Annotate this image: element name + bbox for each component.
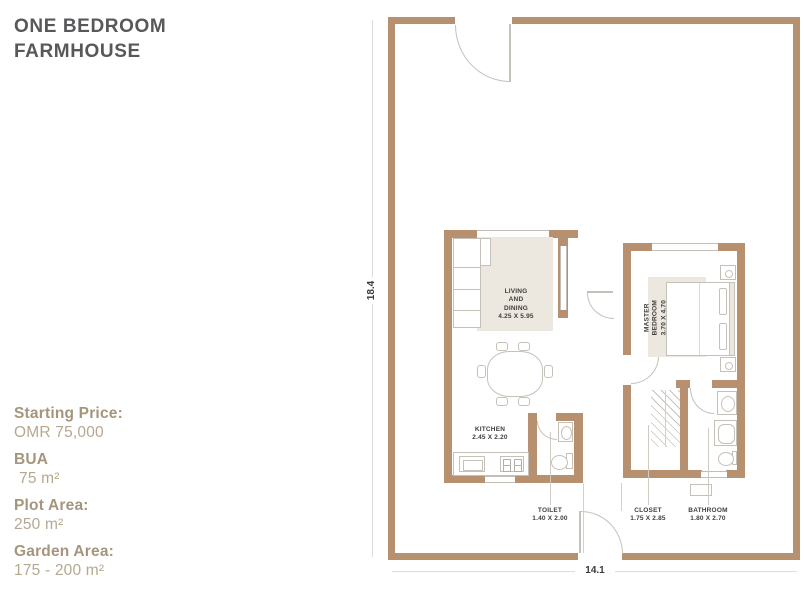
dining-chair bbox=[518, 342, 530, 351]
kitchen-size: 2.45 X 2.20 bbox=[460, 434, 520, 442]
living-dining-size: 4.25 X 5.95 bbox=[481, 313, 551, 321]
plot-wall-top-left bbox=[388, 17, 455, 24]
dining-chair bbox=[477, 365, 486, 378]
living-window-right bbox=[560, 246, 567, 310]
sofa-cushion-line bbox=[454, 310, 480, 311]
dining-table bbox=[487, 351, 543, 397]
page-title: ONE BEDROOM FARMHOUSE bbox=[14, 14, 166, 64]
master-bedroom-name: MASTER BEDROOM bbox=[643, 288, 660, 348]
bed-pillow bbox=[719, 323, 727, 350]
starting-price-value: OMR 75,000 bbox=[14, 424, 123, 443]
room-label-kitchen: KITCHEN 2.45 X 2.20 bbox=[460, 426, 520, 443]
nightstand-lamp bbox=[725, 362, 733, 370]
plot-area-value: 250 m² bbox=[14, 516, 89, 535]
stove-burner bbox=[503, 465, 511, 472]
closet-rail bbox=[665, 390, 666, 447]
kitchen-window-bottom bbox=[485, 476, 515, 483]
hall-door-swing bbox=[587, 293, 614, 319]
brochure-page: ONE BEDROOM FARMHOUSE Starting Price: OM… bbox=[0, 0, 805, 599]
bathroom-leader-line bbox=[708, 428, 709, 505]
dining-chair bbox=[496, 397, 508, 406]
living-wall-left bbox=[444, 230, 452, 483]
toilet-room-sink-basin bbox=[561, 426, 572, 440]
kitchen-toilet-wall bbox=[528, 413, 537, 475]
closet-wall-bottom bbox=[623, 470, 680, 478]
bedroom-window-top bbox=[652, 243, 718, 251]
bathroom-sink-basin bbox=[721, 396, 735, 412]
bathroom-name: BATHROOM bbox=[678, 507, 738, 515]
closet-name: CLOSET bbox=[618, 507, 678, 515]
bedroom-wall-right bbox=[737, 243, 745, 478]
toilet-name: TOILET bbox=[520, 507, 580, 515]
starting-price-label: Starting Price: bbox=[14, 405, 123, 424]
toilet-bowl bbox=[551, 455, 568, 470]
sofa-body bbox=[453, 238, 481, 328]
bathtub-inner bbox=[718, 424, 735, 444]
top-gate-door-swing bbox=[455, 25, 510, 82]
bathroom-size: 1.80 X 2.70 bbox=[678, 515, 738, 523]
kitchen-sink bbox=[459, 456, 485, 472]
garden-area-group: Garden Area: 175 - 200 m² bbox=[14, 543, 114, 580]
bathroom-wall-bottom-b bbox=[726, 470, 745, 478]
bathroom-wall-top-b bbox=[712, 380, 745, 388]
bed-pillow bbox=[719, 288, 727, 315]
bathroom-toilet-bowl bbox=[718, 452, 734, 466]
bua-value: 75 m² bbox=[14, 470, 60, 489]
bathroom-wall-top-a bbox=[676, 380, 690, 388]
room-label-toilet: TOILET 1.40 X 2.00 bbox=[520, 507, 580, 524]
walkway-line bbox=[583, 483, 584, 553]
plot-wall-right bbox=[793, 17, 800, 560]
dining-chair bbox=[496, 342, 508, 351]
starting-price-group: Starting Price: OMR 75,000 bbox=[14, 405, 123, 442]
sofa-cushion-line bbox=[454, 289, 480, 290]
bed-blanket-fold bbox=[699, 283, 700, 355]
bed-headboard bbox=[729, 283, 734, 355]
plot-area-group: Plot Area: 250 m² bbox=[14, 497, 89, 534]
bathroom-door-swing bbox=[690, 388, 714, 414]
garden-area-value: 175 - 200 m² bbox=[14, 562, 114, 581]
bathroom-wall-left bbox=[680, 388, 688, 478]
width-dimension-label: 14.1 bbox=[575, 564, 615, 577]
nightstand-lamp bbox=[725, 270, 733, 278]
kitchen-name: KITCHEN bbox=[460, 426, 520, 434]
dining-chair bbox=[518, 397, 530, 406]
bathroom-wall-bottom-a bbox=[680, 470, 702, 478]
bathtub bbox=[714, 420, 737, 446]
toilet-door-swing bbox=[537, 421, 557, 440]
plot-area-label: Plot Area: bbox=[14, 497, 89, 516]
closet-leader-line bbox=[648, 425, 649, 505]
kitchen-sink-basin bbox=[463, 460, 483, 471]
bedroom-door-swing bbox=[631, 356, 659, 384]
dining-chair bbox=[544, 365, 553, 378]
kitchen-wall-bottom-a bbox=[444, 475, 486, 483]
nightstand bbox=[720, 357, 736, 372]
stove-burner bbox=[514, 465, 522, 472]
plot-wall-bottom-left bbox=[388, 553, 578, 560]
plot-wall-bottom-right bbox=[622, 553, 800, 560]
room-label-master-bedroom: MASTER BEDROOM 3.70 X 4.70 bbox=[626, 288, 686, 348]
toilet-size: 1.40 X 2.00 bbox=[520, 515, 580, 523]
room-label-closet: CLOSET 1.75 X 2.85 bbox=[618, 507, 678, 524]
page-title-line2: FARMHOUSE bbox=[14, 41, 141, 62]
toilet-wall-right bbox=[574, 413, 583, 475]
bottom-gate-door-swing bbox=[581, 511, 623, 554]
living-dining-name: LIVING AND DINING bbox=[481, 288, 551, 313]
kitchen-wall-bottom-b bbox=[514, 475, 583, 483]
height-dimension-label: 18.4 bbox=[366, 276, 379, 303]
bedroom-wall-left-lower bbox=[623, 385, 631, 478]
plot-wall-top-right bbox=[512, 17, 800, 24]
garden-area-label: Garden Area: bbox=[14, 543, 114, 562]
toilet-room-sink bbox=[558, 422, 573, 442]
closet-size: 1.75 X 2.85 bbox=[618, 515, 678, 523]
height-dimension: 18.4 bbox=[352, 268, 392, 312]
kitchen-stove bbox=[500, 456, 524, 472]
toilet-leader-line bbox=[550, 432, 551, 505]
bua-label: BUA bbox=[14, 451, 60, 470]
page-title-line1: ONE BEDROOM bbox=[14, 16, 166, 37]
bathroom-vanity bbox=[717, 391, 737, 415]
room-label-bathroom: BATHROOM 1.80 X 2.70 bbox=[678, 507, 738, 524]
sofa-cushion-line bbox=[454, 267, 480, 268]
bua-group: BUA 75 m² bbox=[14, 451, 60, 488]
master-bedroom-label-text: MASTER BEDROOM 3.70 X 4.70 bbox=[643, 288, 668, 348]
room-label-living-dining: LIVING AND DINING 4.25 X 5.95 bbox=[481, 288, 551, 322]
living-wall-top-a bbox=[444, 230, 478, 238]
bathroom-window-bottom bbox=[701, 471, 727, 478]
master-bedroom-size: 3.70 X 4.70 bbox=[660, 288, 668, 348]
nightstand bbox=[720, 265, 736, 280]
